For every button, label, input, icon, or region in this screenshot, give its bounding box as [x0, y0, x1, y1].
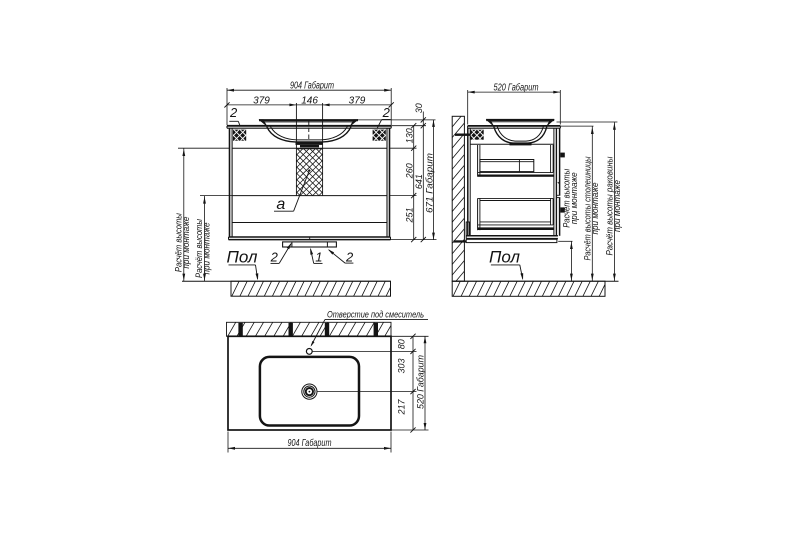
svg-text:при монтаже: при монтаже [612, 180, 622, 232]
svg-text:671 Габарит: 671 Габарит [424, 152, 434, 213]
svg-text:641: 641 [414, 174, 424, 189]
svg-text:80: 80 [396, 339, 406, 349]
svg-text:904 Габарит: 904 Габарит [290, 80, 334, 92]
svg-text:146: 146 [301, 95, 318, 106]
svg-text:при монтаже: при монтаже [590, 183, 600, 235]
svg-text:520 Габарит: 520 Габарит [415, 355, 425, 409]
svg-text:30: 30 [414, 103, 424, 113]
svg-text:при монтаже: при монтаже [569, 172, 579, 224]
svg-text:251: 251 [404, 207, 414, 223]
svg-text:Пол: Пол [227, 248, 258, 267]
svg-text:a: a [276, 196, 285, 213]
svg-text:при монтаже: при монтаже [202, 223, 212, 275]
svg-text:2: 2 [229, 105, 238, 120]
svg-text:260: 260 [404, 163, 414, 179]
svg-text:379: 379 [253, 95, 270, 106]
svg-text:303: 303 [396, 358, 406, 373]
svg-text:520 Габарит: 520 Габарит [494, 82, 539, 94]
svg-text:130: 130 [404, 128, 414, 143]
svg-text:379: 379 [349, 95, 366, 106]
svg-text:904 Габарит: 904 Габарит [288, 437, 332, 449]
svg-text:2: 2 [270, 250, 279, 265]
svg-text:при монтаже: при монтаже [181, 217, 191, 269]
svg-text:217: 217 [396, 399, 406, 416]
svg-text:Пол: Пол [489, 248, 520, 267]
svg-text:2: 2 [345, 250, 354, 265]
svg-text:1: 1 [315, 250, 322, 265]
